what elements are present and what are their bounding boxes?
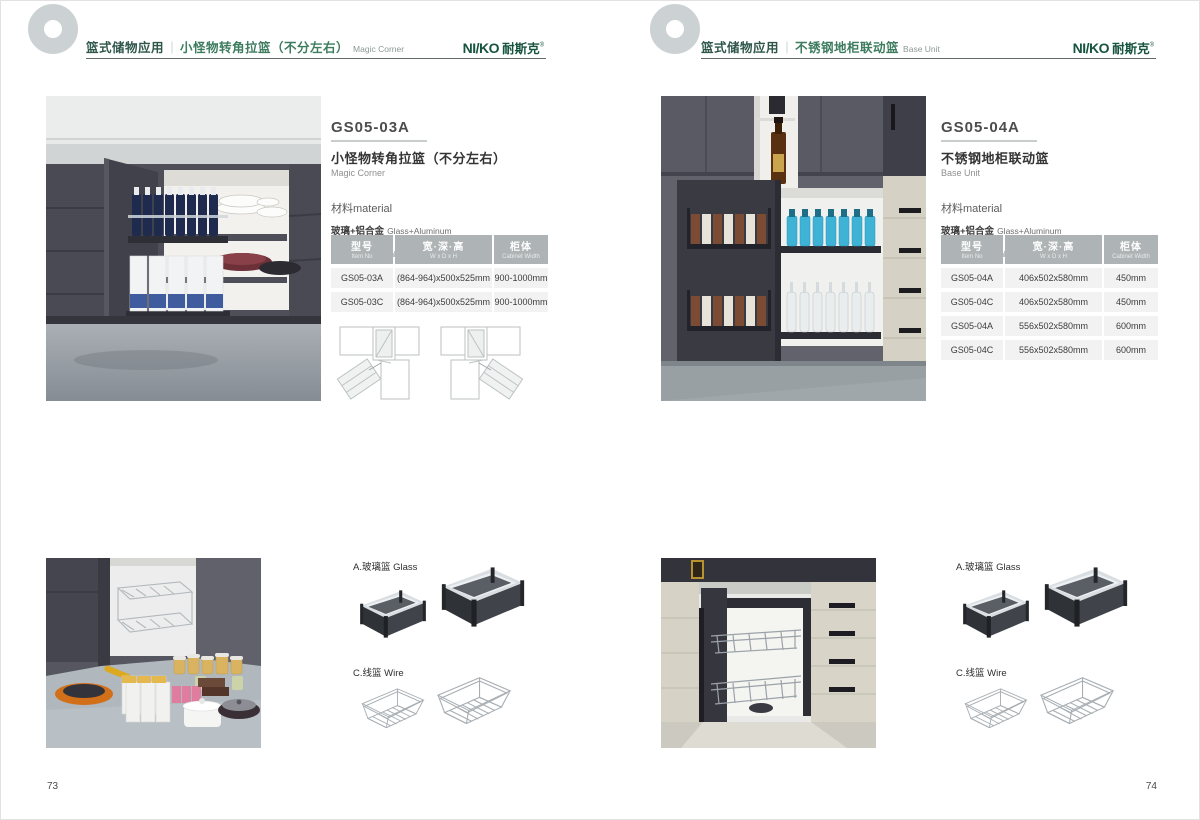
table-header-itemno: 型号Item No (941, 235, 1003, 264)
registered-mark: ® (540, 43, 544, 49)
catalog-page-right: 篮式储物应用｜不锈钢地柜联动篮Base Unit NI/KO耐斯克® (601, 1, 1200, 820)
product-model: GS05-04A (941, 119, 1037, 142)
header-category: 篮式储物应用 (86, 41, 164, 55)
product-name-en: Magic Corner (331, 168, 551, 178)
brand-logo: NI/KO耐斯克® (1073, 38, 1154, 58)
wire-basket-label: C.线篮 Wire (353, 665, 404, 679)
table-cell: 900-1000mm (494, 292, 548, 312)
corner-diagram-left (337, 317, 422, 402)
table-cell: 556x502x580mm (1005, 316, 1102, 336)
table-header-cabinet: 柜体Cabinet Width (1104, 235, 1158, 264)
product-photo-base-unit (661, 96, 926, 401)
table-cell: GS05-04C (941, 292, 1003, 312)
product-photo-corner-detail (46, 558, 261, 748)
brand-logo-en: NI/KO (1073, 40, 1109, 56)
material-label: 材料material (331, 200, 551, 216)
accessory-wire-basket: C.线篮 Wire (956, 665, 1161, 755)
page-number: 73 (47, 781, 58, 792)
brand-logo-cn: 耐斯克 (502, 42, 540, 56)
table-header-itemno: 型号Item No (331, 235, 393, 264)
glass-basket-label: A.玻璃篮 Glass (353, 559, 417, 573)
product-name-cn: 不锈钢地柜联动篮 (941, 148, 1161, 167)
product-name-en: Base Unit (941, 168, 1161, 178)
header-divider: ｜ (166, 41, 178, 55)
c-watermark-logo (28, 4, 78, 54)
registered-mark: ® (1150, 43, 1154, 49)
wire-basket-large (1028, 669, 1124, 741)
header-category: 篮式储物应用 (701, 41, 779, 55)
table-cell: 900-1000mm (494, 268, 548, 288)
table-cell: GS05-03A (331, 268, 393, 288)
brand-logo-en: NI/KO (463, 40, 499, 56)
product-photo-magic-corner (46, 96, 321, 401)
table-header-cabinet: 柜体Cabinet Width (494, 235, 548, 264)
table-cell: GS05-04A (941, 316, 1003, 336)
table-cell: 600mm (1104, 340, 1158, 360)
page-number: 74 (1146, 781, 1157, 792)
product-model: GS05-03A (331, 119, 427, 142)
header-title-en: Magic Corner (353, 44, 404, 54)
product-photo-wire-cabinet (661, 558, 876, 748)
table-cell: GS05-04A (941, 268, 1003, 288)
wire-basket-small (958, 681, 1032, 743)
brand-logo-cn: 耐斯克 (1112, 42, 1150, 56)
catalog-spread: 篮式储物应用｜小怪物转角拉篮（不分左右）Magic Corner NI/KO耐斯… (0, 0, 1200, 820)
header-divider: ｜ (781, 41, 793, 55)
header-rule (86, 58, 546, 59)
wire-basket-label: C.线篮 Wire (956, 665, 1007, 679)
table-cell: 450mm (1104, 292, 1158, 312)
table-cell: GS05-03C (331, 292, 393, 312)
glass-basket-small (958, 585, 1034, 643)
table-header-wdh: 宽·深·高W x D x H (1005, 235, 1102, 264)
table-cell: 450mm (1104, 268, 1158, 288)
corner-diagram-right (438, 317, 523, 402)
brand-logo: NI/KO耐斯克® (463, 38, 544, 58)
wire-basket-small (355, 681, 429, 743)
page-header: 篮式储物应用｜不锈钢地柜联动篮Base Unit (701, 37, 940, 57)
glass-basket-large (1036, 561, 1136, 633)
accessory-glass-basket: A.玻璃篮 Glass (353, 559, 558, 659)
table-cell: GS05-04C (941, 340, 1003, 360)
table-cell: (864-964)x500x525mm (395, 292, 492, 312)
installation-diagrams (337, 317, 523, 402)
spec-table: 型号Item No 宽·深·高W x D x H 柜体Cabinet Width… (331, 235, 548, 312)
glass-basket-large (433, 561, 533, 633)
header-title-cn: 不锈钢地柜联动篮 (795, 41, 899, 55)
table-cell: 600mm (1104, 316, 1158, 336)
product-name-cn: 小怪物转角拉篮（不分左右） (331, 148, 551, 167)
page-header: 篮式储物应用｜小怪物转角拉篮（不分左右）Magic Corner (86, 37, 404, 57)
table-cell: (864-964)x500x525mm (395, 268, 492, 288)
glass-basket-label: A.玻璃篮 Glass (956, 559, 1020, 573)
header-title-cn: 小怪物转角拉篮（不分左右） (180, 41, 349, 55)
table-cell: 406x502x580mm (1005, 268, 1102, 288)
c-watermark-logo (650, 4, 700, 54)
accessory-wire-basket: C.线篮 Wire (353, 665, 558, 755)
table-cell: 406x502x580mm (1005, 292, 1102, 312)
table-header-wdh: 宽·深·高W x D x H (395, 235, 492, 264)
catalog-page-left: 篮式储物应用｜小怪物转角拉篮（不分左右）Magic Corner NI/KO耐斯… (1, 1, 601, 820)
header-title-en: Base Unit (903, 44, 940, 54)
accessory-glass-basket: A.玻璃篮 Glass (956, 559, 1161, 659)
header-rule (701, 58, 1156, 59)
glass-basket-small (355, 585, 431, 643)
spec-table: 型号Item No 宽·深·高W x D x H 柜体Cabinet Width… (941, 235, 1158, 360)
wire-basket-large (425, 669, 521, 741)
table-cell: 556x502x580mm (1005, 340, 1102, 360)
material-label: 材料material (941, 200, 1161, 216)
